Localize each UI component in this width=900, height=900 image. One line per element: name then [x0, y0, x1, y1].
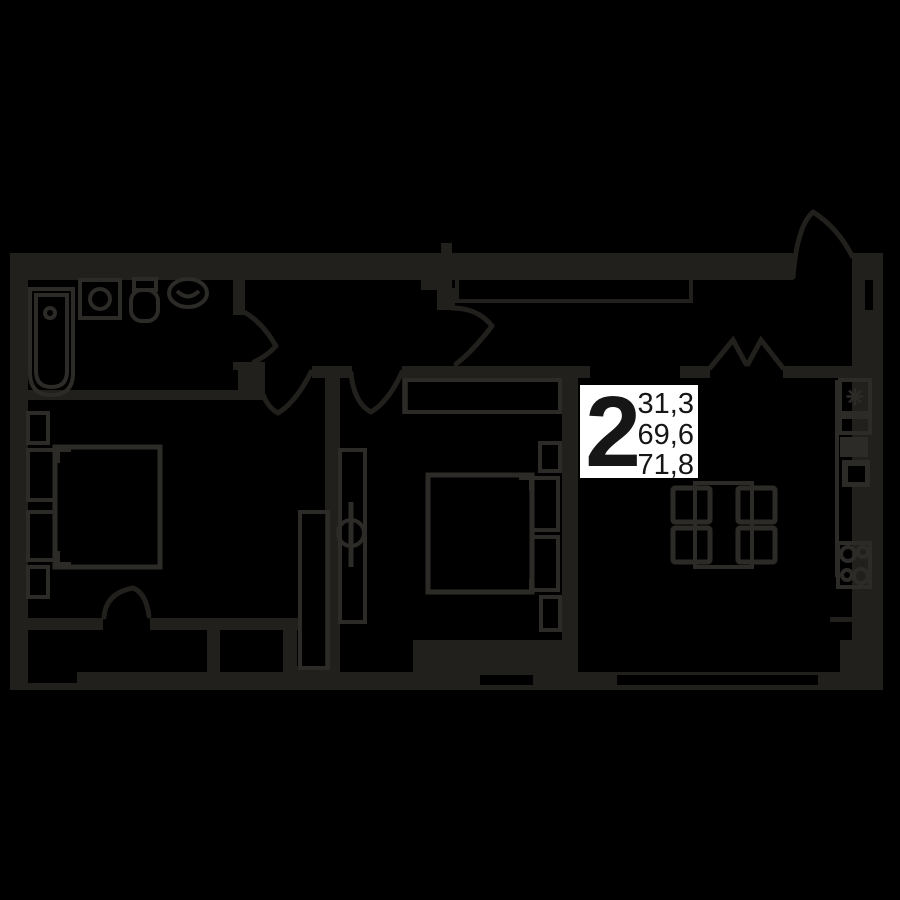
sliding-door — [338, 450, 365, 622]
bathroom-fixtures — [30, 279, 207, 395]
window-slot-living — [617, 675, 818, 685]
wall-bathroom-right-stub — [233, 278, 245, 315]
door-entrance-arc — [793, 212, 852, 277]
interior-walls — [28, 275, 883, 690]
nightstand-1b — [28, 567, 48, 597]
nightstand-2a — [540, 443, 560, 471]
unit-area-total: 71,8 — [638, 449, 694, 481]
recess-cap-right — [689, 278, 693, 303]
door-loggia — [104, 588, 149, 617]
wall-kitchen-door-jamb-a — [421, 275, 452, 290]
chair-top-left — [673, 488, 710, 522]
floor-plan: 2 31,3 69,6 71,8 — [0, 0, 900, 900]
door-bathroom — [244, 312, 276, 362]
wall-entry-b — [783, 366, 852, 378]
stove-burner-3 — [842, 570, 852, 580]
counter-end-line — [830, 617, 857, 622]
unit-info-card: 2 31,3 69,6 71,8 — [580, 376, 698, 488]
dining-table — [695, 483, 752, 567]
loggia-floor-step — [28, 672, 77, 683]
exterior-walls — [10, 243, 883, 690]
counter-block — [840, 437, 868, 457]
bed1-fold-mark-top — [58, 450, 71, 463]
recess-bottom-line — [455, 299, 693, 303]
floor-plan-canvas: 2 31,3 69,6 71,8 — [0, 0, 900, 900]
bed1-pillow-top — [28, 450, 55, 500]
wall-left — [10, 253, 28, 690]
wall-kitchen-step-lower — [840, 640, 883, 672]
wall-bedroom2-sill-block — [413, 640, 562, 672]
window-slot-bedroom2 — [480, 675, 533, 685]
nightstand-1a — [28, 413, 48, 443]
wall-loggia-right — [207, 618, 220, 690]
unit-area-living: 31,3 — [638, 388, 694, 420]
wall-top-vent-stub — [441, 243, 452, 255]
bed1-fold-mark-bottom — [58, 551, 71, 564]
washing-machine — [80, 280, 120, 318]
bed1-pillow-bottom — [28, 512, 55, 560]
bedroom1-door-leaf — [300, 512, 328, 668]
washbasin — [169, 279, 207, 307]
wardrobe — [405, 380, 560, 412]
bed2 — [428, 475, 532, 592]
wall-corridor-left-lower — [283, 618, 297, 690]
wall-bedroom1-bottom-left — [28, 618, 103, 630]
wall-hall-center-stub — [312, 366, 352, 378]
window-slot-right — [865, 280, 873, 310]
chair-bottom-right — [738, 528, 775, 562]
bathtub-drain — [45, 308, 55, 318]
bed2-pillow-bottom — [532, 537, 558, 590]
washbasin-bowl-line — [177, 291, 199, 297]
unit-rooms-count: 2 — [585, 376, 641, 488]
wall-kitchen-step-upper — [855, 615, 883, 642]
chair-top-right — [738, 488, 775, 522]
wall-top — [10, 253, 793, 280]
door-bedroom1 — [258, 371, 311, 413]
wall-bedroom2-right — [562, 378, 578, 672]
kitchen-sink-basin — [848, 466, 865, 482]
washing-machine-drum — [90, 289, 110, 309]
bedroom2-furniture — [405, 380, 560, 630]
unit-area-area: 69,6 — [638, 419, 694, 451]
bed2-fold-mark-top — [519, 478, 531, 491]
door-kitchen-hall — [452, 308, 492, 364]
bed2-pillow-top — [532, 478, 558, 530]
kitchen-furniture — [673, 380, 870, 587]
wall-hall-south — [402, 366, 590, 378]
door-corridor — [351, 372, 402, 412]
wall-bedroom1-bottom-right — [150, 618, 300, 630]
wall-bathroom-corner-thin — [233, 362, 265, 370]
bed1 — [55, 447, 160, 567]
chair-bottom-left — [673, 528, 710, 562]
bed2-fold-mark-bottom — [519, 579, 531, 592]
door-double-leaf — [710, 340, 783, 368]
nightstand-2b — [541, 597, 560, 630]
toilet-bowl — [131, 290, 158, 321]
wall-entry-a — [680, 366, 710, 378]
fridge-snowflake-icon — [847, 388, 864, 405]
